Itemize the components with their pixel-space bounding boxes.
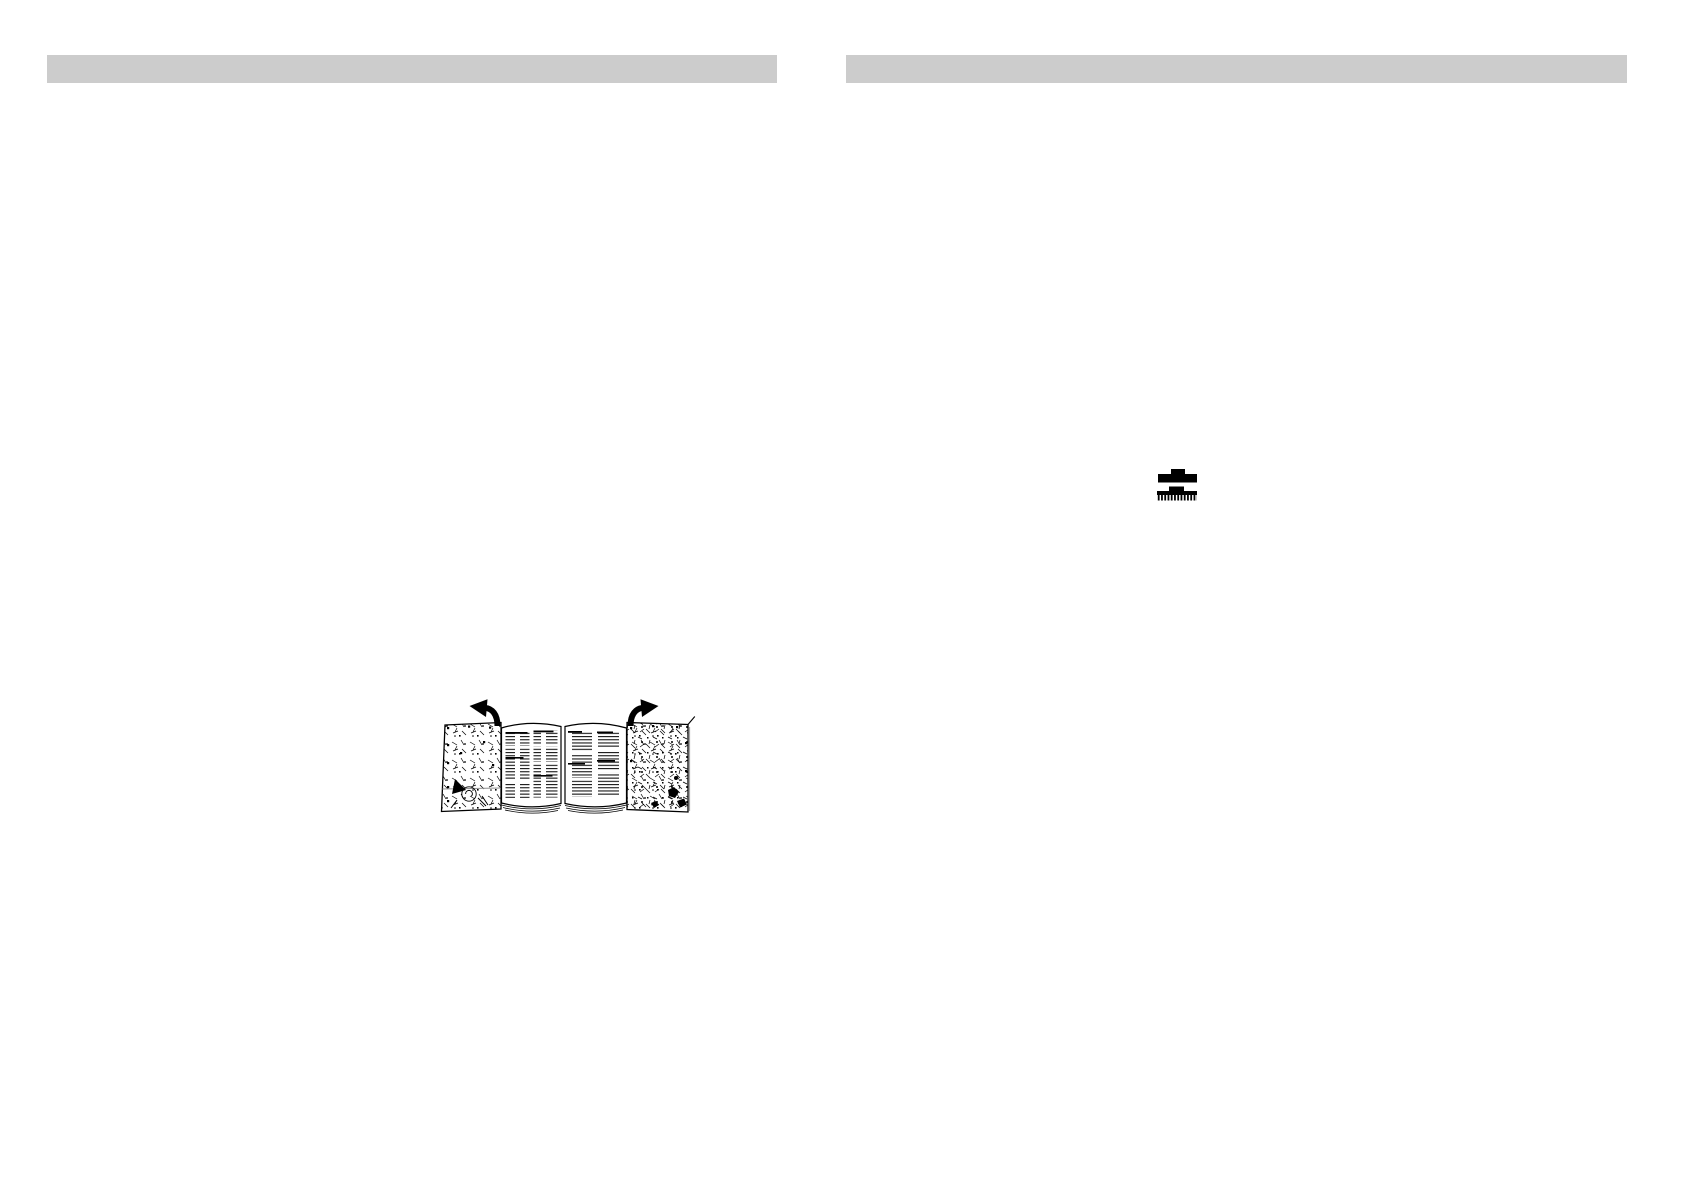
unfold-arrow-right-icon	[631, 699, 659, 726]
header-bar-left	[47, 55, 777, 83]
fold-out-booklet-illustration	[440, 695, 696, 820]
booklet-center-pages	[502, 723, 627, 813]
booklet-left-panel	[442, 723, 503, 813]
brush-bristle-view	[1157, 487, 1197, 496]
brush-back-view	[1158, 469, 1197, 483]
page-text-columns	[505, 731, 622, 799]
booklet-right-panel	[627, 717, 695, 813]
manual-spread-page	[0, 0, 1684, 1190]
header-bar-right	[846, 55, 1627, 83]
cleaning-brush-icon	[1155, 466, 1200, 503]
panel-fold-edge	[688, 717, 695, 725]
unfold-arrow-left-icon	[470, 699, 498, 726]
